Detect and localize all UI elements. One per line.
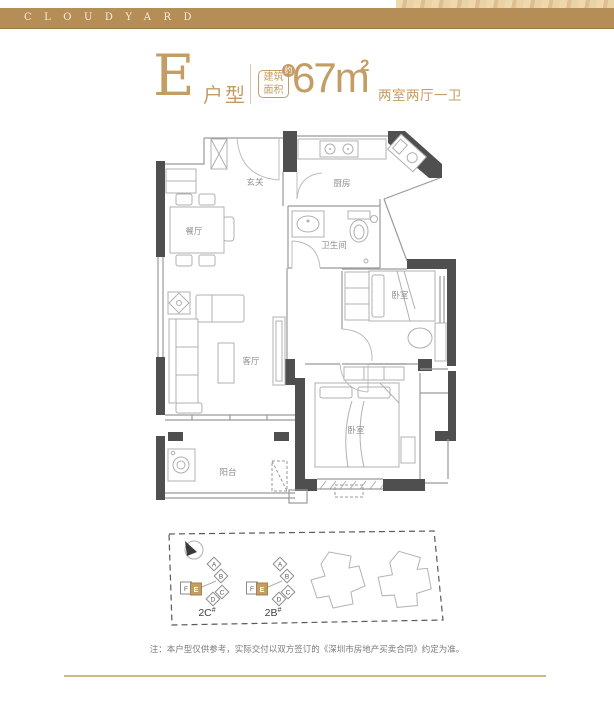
room-label-kitchen: 厨房 — [333, 178, 350, 188]
unit-label-c: C — [220, 589, 225, 596]
unit-label-b: B — [285, 573, 289, 580]
footer-divider — [64, 675, 546, 677]
brand-name: CLOUDYARD — [0, 8, 614, 28]
room-label-dining: 餐厅 — [185, 226, 203, 236]
unit-label-f: F — [250, 586, 254, 593]
title-divider — [250, 64, 251, 104]
building-cluster-2c: A B C D F E — [181, 557, 229, 606]
unit-label-c: C — [286, 589, 291, 596]
unit-label-e: E — [194, 587, 199, 594]
unit-label-f: F — [184, 586, 188, 593]
bathroom-fixtures — [292, 211, 378, 263]
bedroom1-furniture — [345, 271, 446, 361]
brand-banner: CLOUDYARD — [0, 8, 614, 29]
unit-label-a: A — [212, 561, 217, 568]
room-label-bathroom: 卫生间 — [321, 240, 347, 250]
bedroom2-furniture — [315, 367, 415, 467]
room-label-foyer: 玄关 — [246, 177, 264, 187]
unit-label-d: D — [277, 596, 282, 603]
unit-label-b: B — [219, 573, 223, 580]
building-label-2c: 2C# — [198, 607, 215, 619]
layout-label: 两室两厅一卫 — [378, 84, 462, 104]
area-superscript: 2 — [360, 56, 369, 76]
flyer-page: CLOUDYARD E 户型 建筑 面积 约 67m 2 两室两厅一卫 — [0, 0, 614, 721]
floor-plan: 玄关 厨房 餐厅 卫生间 客厅 卧室 卧室 阳台 — [152, 131, 462, 511]
site-plan: A B C D F E 2C# A B C D F E 2B# — [95, 528, 525, 636]
living-room-furniture — [168, 292, 285, 413]
building-cluster-2b: A B C D F E — [247, 557, 295, 606]
area-badge-line2: 面积 — [259, 84, 288, 97]
room-label-bedroom2: 卧室 — [347, 425, 365, 435]
building-outline-1 — [311, 552, 365, 608]
unit-type-label: 户型 — [203, 79, 247, 108]
kitchen-counter — [298, 134, 426, 172]
room-label-balcony: 阳台 — [219, 467, 236, 477]
building-label-2b: 2B# — [265, 607, 282, 619]
area-value: 67m — [292, 57, 368, 99]
disclaimer-note: 注：本户型仅供参考，实际交付以双方签订的《深圳市房地产买卖合同》约定为准。 — [0, 643, 614, 655]
unit-letter: E — [153, 48, 195, 105]
closet-shaft — [166, 139, 227, 193]
north-arrow-icon — [185, 541, 203, 559]
unit-label-a: A — [278, 561, 283, 568]
unit-label-e: E — [260, 587, 265, 594]
room-label-bedroom1: 卧室 — [391, 290, 409, 300]
room-label-living: 客厅 — [242, 356, 260, 366]
building-outline-2 — [375, 549, 435, 610]
unit-label-d: D — [211, 596, 216, 603]
